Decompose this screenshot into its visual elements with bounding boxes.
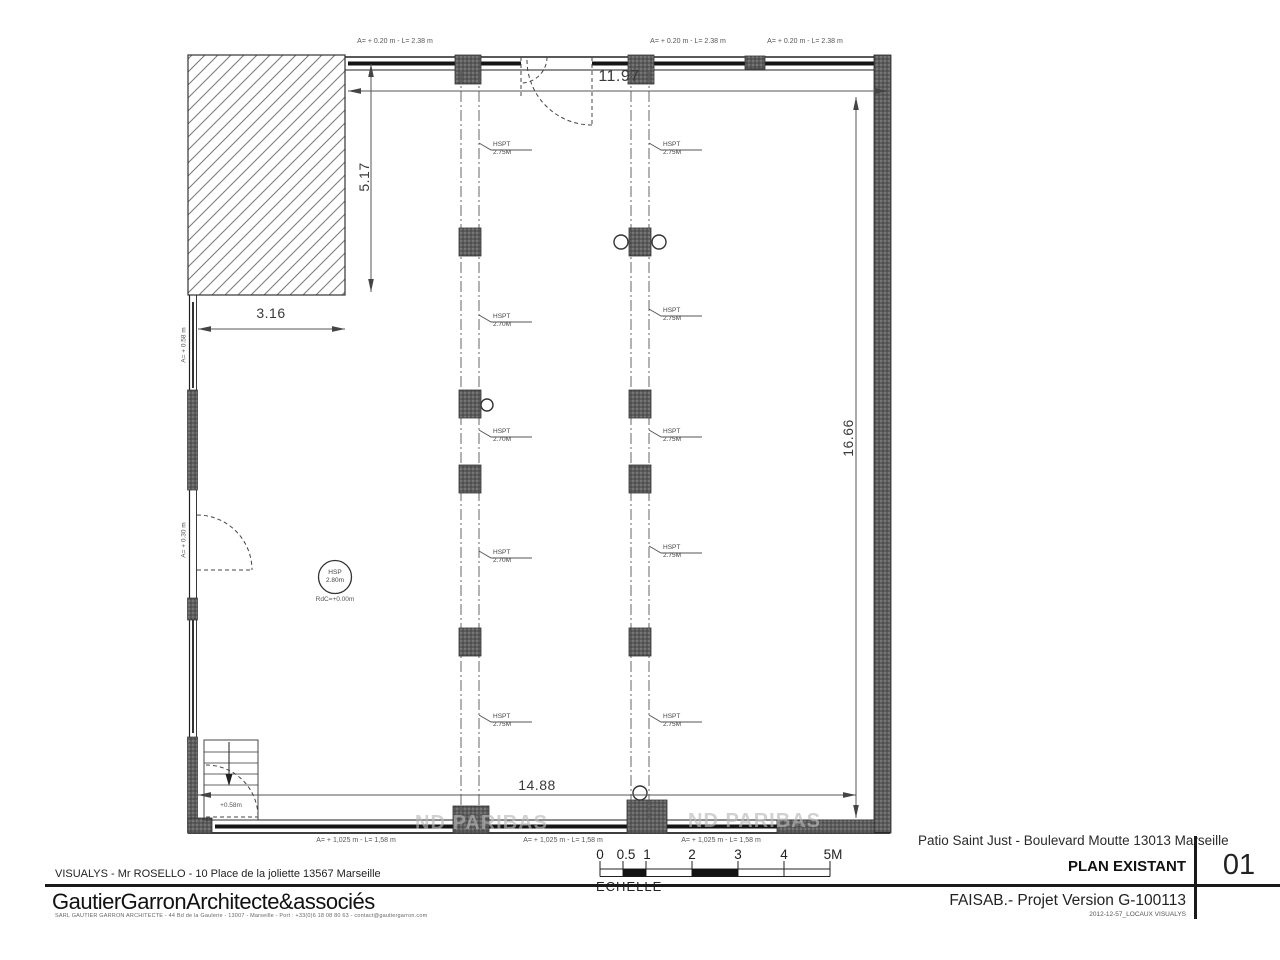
client-line: VISUALYS - Mr ROSELLO - 10 Place de la j… xyxy=(55,868,381,880)
dimension-left-offset: 3.16 xyxy=(256,305,285,321)
title-block-vertical-rule xyxy=(1194,836,1197,919)
ceiling-height-label: HSPT2.75M xyxy=(663,141,681,157)
window-annotation-left: A= + 0.30 m xyxy=(181,522,188,557)
sheet-number: 01 xyxy=(1200,849,1278,882)
dimension-right-height: 16.66 xyxy=(840,419,856,457)
ceiling-height-label: HSPT2.70M xyxy=(493,549,511,565)
left-door-swing xyxy=(197,515,252,570)
scale-tick-label: 1 xyxy=(643,847,651,862)
watermark-text: ND PARIBAS xyxy=(688,810,821,833)
ceiling-height-label: HSPT2.75M xyxy=(663,713,681,729)
dimension-top-width: 11.97 xyxy=(598,68,639,86)
floor-plan-drawing xyxy=(0,0,1280,960)
scale-tick-label: 4 xyxy=(780,847,788,862)
left-wall xyxy=(188,295,198,833)
ceiling-height-label: HSPT2.75M xyxy=(493,141,511,157)
scale-tick-label: 0.5 xyxy=(617,847,636,862)
ceiling-height-label: HSPT2.75M xyxy=(663,428,681,444)
drawing-title: PLAN EXISTANT xyxy=(918,858,1186,875)
ceiling-height-label: HSPT2.70M xyxy=(493,313,511,329)
window-annotation-top: A= + 0.20 m - L= 2.38 m xyxy=(357,38,433,45)
room-height-label: HSP 2.80m xyxy=(326,569,344,584)
project-address: Patio Saint Just - Boulevard Moutte 1301… xyxy=(918,833,1229,848)
window-annotation-bottom: A= + 1,025 m - L= 1,58 m xyxy=(523,837,603,844)
post-circle xyxy=(633,786,647,800)
dimension-bottom-width: 14.88 xyxy=(518,777,556,793)
watermark-text: ND PARIBAS xyxy=(415,812,548,835)
column xyxy=(455,55,481,84)
architect-firm: GautierGarronArchitecte&associés xyxy=(52,889,375,915)
column-grid-lines xyxy=(461,72,649,818)
window-annotation-top: A= + 0.20 m - L= 2.38 m xyxy=(767,38,843,45)
ceiling-height-label: HSPT2.75M xyxy=(663,544,681,560)
architect-details: SARL GAUTIER GARRON ARCHITECTE - 44 Bd d… xyxy=(55,913,427,919)
top-door-swing xyxy=(521,57,592,127)
window-annotation-bottom: A= + 1,025 m - L= 1,58 m xyxy=(316,837,396,844)
column xyxy=(627,800,667,833)
scale-bar xyxy=(600,861,830,877)
ceiling-height-label: HSPT2.75M xyxy=(493,713,511,729)
interior-columns xyxy=(459,228,651,656)
pier xyxy=(745,56,765,69)
floor-level-label: RdC=+0.00m xyxy=(316,596,355,603)
adjacent-building-hatch xyxy=(188,55,345,295)
drawing-sheet: ND PARIBAS ND PARIBAS xyxy=(0,0,1280,960)
window-annotation-left: A= + 0.58 m xyxy=(181,327,188,362)
scale-tick-label: 5M xyxy=(824,847,843,862)
dimension-left-height: 5.17 xyxy=(356,162,372,191)
right-wall xyxy=(874,55,891,833)
project-version: FAISAB.- Projet Version G-100113 xyxy=(918,892,1186,910)
scale-tick-label: 2 xyxy=(688,847,696,862)
window-annotation-bottom: A= + 1,025 m - L= 1,58 m xyxy=(681,837,761,844)
scale-tick-label: 0 xyxy=(596,847,604,862)
scale-tick-label: 3 xyxy=(734,847,742,862)
ceiling-height-label: HSPT2.70M xyxy=(493,428,511,444)
title-block-horizontal-rule xyxy=(45,884,1280,887)
stair-door-annotation: +0.58m xyxy=(220,802,242,809)
file-reference: 2012-12-57_LOCAUX VISUALYS xyxy=(918,911,1186,918)
ceiling-height-label: HSPT2.75M xyxy=(663,307,681,323)
window-annotation-top: A= + 0.20 m - L= 2.38 m xyxy=(650,38,726,45)
